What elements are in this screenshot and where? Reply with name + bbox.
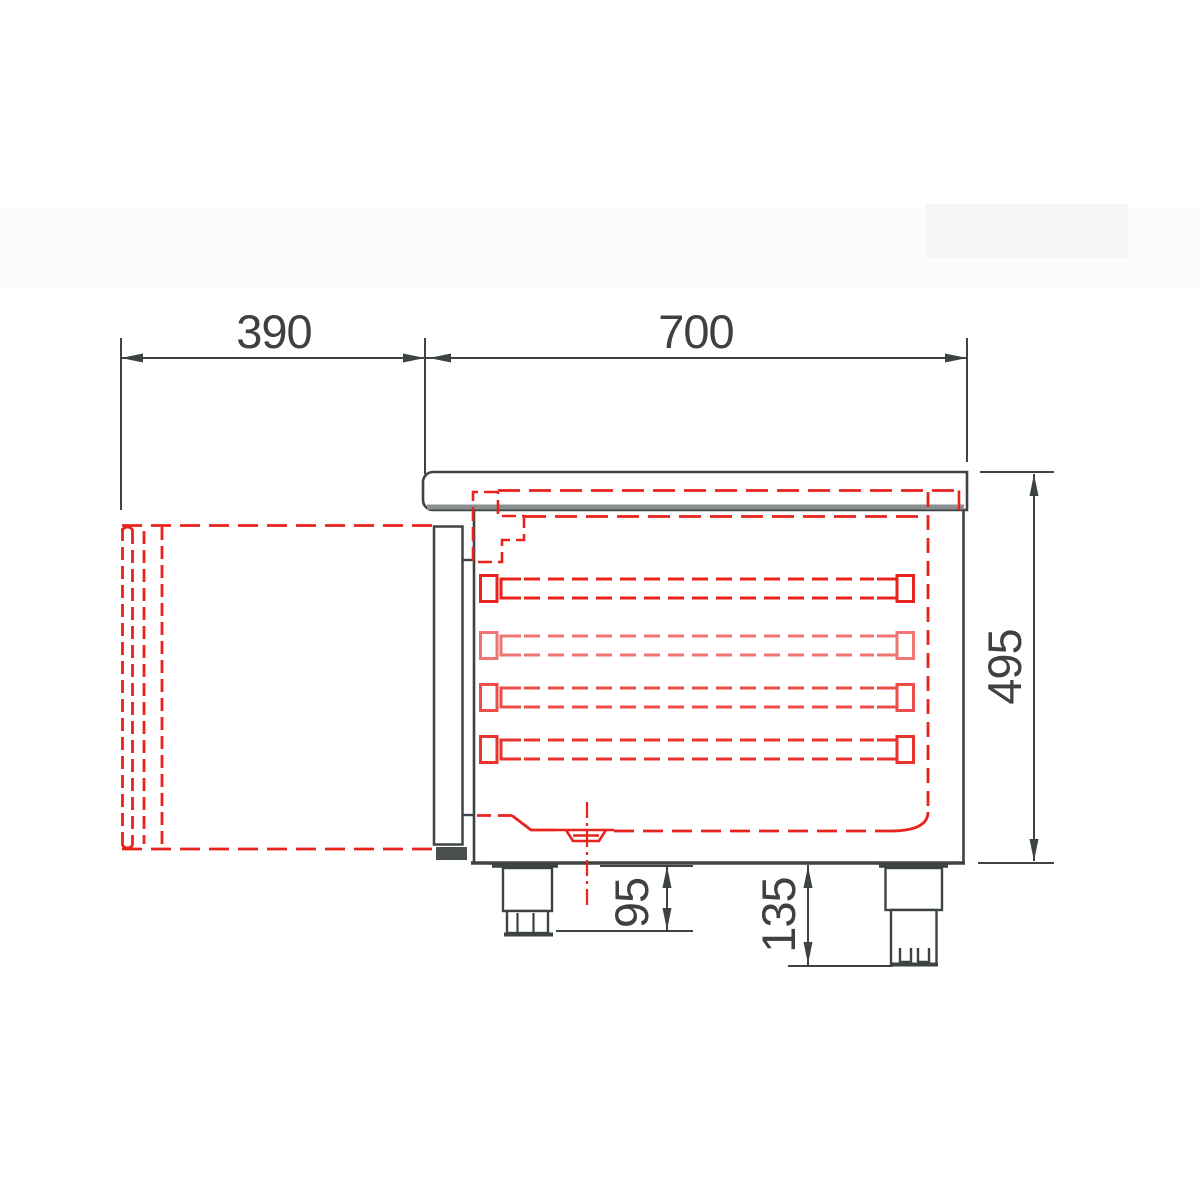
rail-left-clip — [501, 636, 521, 655]
arrow-95-top — [663, 866, 672, 888]
drain — [556, 830, 614, 841]
shelf-rail — [481, 685, 914, 711]
dim-label-700: 700 — [658, 305, 733, 358]
dimension-labels: 390 700 495 95 135 — [236, 305, 1031, 953]
rail-right-end — [897, 685, 914, 711]
rail-left-clip — [501, 688, 521, 707]
arrow-495-bottom — [1030, 839, 1039, 861]
door-closed — [434, 527, 467, 861]
rail-left-clip — [501, 740, 521, 759]
arrow-95-bottom — [663, 908, 672, 930]
arrow-390-right — [403, 354, 425, 363]
arrow-700-right — [945, 354, 967, 363]
door-open-dashed — [122, 526, 433, 850]
door-panel — [434, 527, 463, 845]
rail-right-clip — [877, 636, 897, 655]
dim-label-135: 135 — [752, 877, 805, 952]
drawing-svg: 390 700 495 95 135 — [0, 0, 1200, 1200]
open-door-fold-top — [123, 527, 133, 531]
right-foot — [879, 866, 948, 965]
technical-drawing-page: 390 700 495 95 135 — [0, 0, 1200, 1200]
rail-right-end — [897, 633, 914, 659]
shelf-rail — [481, 633, 914, 659]
left-foot-upper — [503, 868, 552, 911]
shelf-rails — [481, 576, 914, 763]
rail-right-end — [897, 576, 914, 602]
rail-left-end — [481, 633, 498, 659]
rail-left-end — [481, 576, 498, 602]
shelf-rail — [481, 576, 914, 602]
dim-label-95: 95 — [605, 878, 658, 928]
shelf-rail — [481, 737, 914, 763]
red-hidden-lines — [122, 491, 959, 909]
rail-right-clip — [877, 740, 897, 759]
arrow-700-left — [429, 354, 451, 363]
open-door-fold-bottom — [123, 844, 133, 848]
right-foot-upper — [886, 868, 943, 910]
left-foot — [492, 866, 558, 935]
liner-back-corner — [890, 812, 928, 831]
rail-left-clip — [501, 579, 521, 598]
door-bottom-bracket — [436, 847, 467, 860]
rail-right-end — [897, 737, 914, 763]
arrow-495-top — [1030, 474, 1039, 496]
dim-label-495: 495 — [978, 629, 1031, 704]
rail-right-clip — [877, 579, 897, 598]
rail-left-end — [481, 685, 498, 711]
arrow-390-left — [121, 354, 143, 363]
rail-left-end — [481, 737, 498, 763]
rail-right-clip — [877, 688, 897, 707]
dim-label-390: 390 — [236, 305, 311, 358]
left-foot-lower — [507, 911, 548, 933]
liner-floor-slope — [512, 816, 556, 831]
